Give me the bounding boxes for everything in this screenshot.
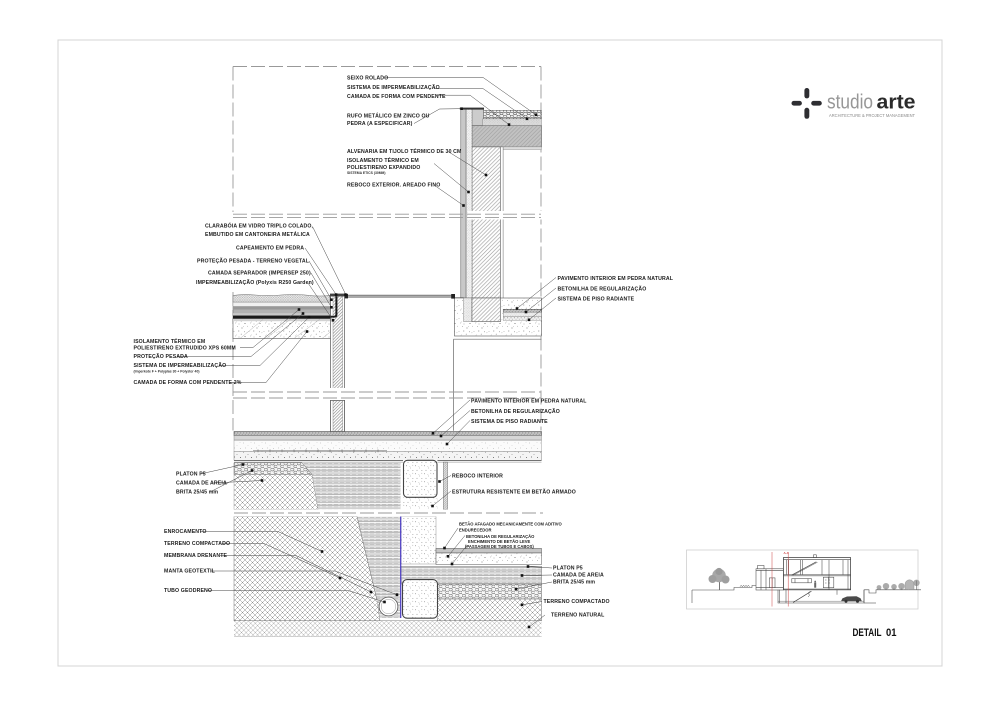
svg-text:A-A: A-A bbox=[784, 551, 790, 555]
svg-text:ISOLAMENTO TÉRMICO EM: ISOLAMENTO TÉRMICO EM bbox=[134, 337, 206, 345]
svg-text:SISTEMA DE IMPERMEABILIZAÇÃO: SISTEMA DE IMPERMEABILIZAÇÃO bbox=[347, 84, 440, 91]
svg-text:CAMADA SEPARADOR (IMPERSEP 250: CAMADA SEPARADOR (IMPERSEP 250) bbox=[208, 271, 311, 277]
svg-text:ENROCAMENTO: ENROCAMENTO bbox=[164, 529, 207, 535]
svg-text:MEMBRANA DRENANTE: MEMBRANA DRENANTE bbox=[164, 553, 228, 559]
svg-text:EMBUTIDO EM CANTONEIRA METÁLIC: EMBUTIDO EM CANTONEIRA METÁLICA bbox=[205, 231, 310, 238]
svg-text:PEDRA (A ESPECIFICAR): PEDRA (A ESPECIFICAR) bbox=[347, 121, 413, 127]
svg-text:arte: arte bbox=[877, 91, 916, 114]
svg-text:ESTRUTURA RESISTENTE EM BETÃO: ESTRUTURA RESISTENTE EM BETÃO ARMADO bbox=[452, 489, 576, 496]
svg-text:(Imperkote F + Polyplas 30 + P: (Imperkote F + Polyplas 30 + Polyster 40… bbox=[134, 370, 200, 374]
svg-text:CAMADA DE AREIA: CAMADA DE AREIA bbox=[553, 573, 604, 579]
svg-text:RUFO METÁLICO EM ZINCO OU: RUFO METÁLICO EM ZINCO OU bbox=[347, 113, 430, 120]
svg-text:ISOLAMENTO TÉRMICO EM: ISOLAMENTO TÉRMICO EM bbox=[347, 156, 419, 164]
svg-text:CAMADA DE FORMA COM PENDENTE: CAMADA DE FORMA COM PENDENTE bbox=[347, 94, 446, 100]
svg-text:(PASSAGEM DE TUBOS E CABOS): (PASSAGEM DE TUBOS E CABOS) bbox=[465, 544, 534, 549]
svg-text:PAVIMENTO INTERIOR EM PEDRA NA: PAVIMENTO INTERIOR EM PEDRA NATURAL bbox=[558, 276, 674, 282]
svg-text:01: 01 bbox=[886, 627, 897, 639]
svg-text:TUBO GEODRENO: TUBO GEODRENO bbox=[164, 588, 212, 594]
svg-text:REBOCO INTERIOR: REBOCO INTERIOR bbox=[452, 474, 503, 480]
svg-text:IMPERMEABILIZAÇÃO (Polyxis R25: IMPERMEABILIZAÇÃO (Polyxis R250 Garden) bbox=[196, 279, 314, 286]
svg-text:SISTEMA ETICS (30MM): SISTEMA ETICS (30MM) bbox=[347, 171, 386, 175]
svg-text:ALVENARIA EM TIJOLO TÉRMICO DE: ALVENARIA EM TIJOLO TÉRMICO DE 30 CM bbox=[347, 147, 462, 155]
svg-text:PROTEÇÃO PESADA - TERRENO VEGE: PROTEÇÃO PESADA - TERRENO VEGETAL bbox=[197, 258, 310, 265]
svg-text:BETÃO AFAGADO MECANICAMENTE CO: BETÃO AFAGADO MECANICAMENTE COM ADITIVO bbox=[459, 522, 563, 527]
svg-text:PROTEÇÃO PESADA: PROTEÇÃO PESADA bbox=[134, 353, 189, 360]
svg-text:CAMADA DE FORMA COM PENDENTE 2: CAMADA DE FORMA COM PENDENTE 2% bbox=[134, 380, 242, 386]
svg-text:CAPEAMENTO EM PEDRA: CAPEAMENTO EM PEDRA bbox=[236, 246, 304, 252]
svg-text:POLIESTIRENO EXTRUDIDO XPS 60M: POLIESTIRENO EXTRUDIDO XPS 60MM bbox=[134, 346, 236, 352]
svg-text:BETONILHA DE REGULARIZAÇÃO: BETONILHA DE REGULARIZAÇÃO bbox=[558, 286, 647, 293]
svg-text:SEIXO ROLADO: SEIXO ROLADO bbox=[347, 76, 388, 82]
svg-text:CAMADA DE AREIA: CAMADA DE AREIA bbox=[176, 481, 227, 487]
svg-text:PLATON P5: PLATON P5 bbox=[176, 472, 206, 478]
svg-text:BETONILHA DE REGULARIZAÇÃO: BETONILHA DE REGULARIZAÇÃO bbox=[471, 408, 560, 415]
svg-text:REBOCO EXTERIOR. AREADO FINO: REBOCO EXTERIOR. AREADO FINO bbox=[347, 183, 440, 189]
svg-text:PLATON P5: PLATON P5 bbox=[553, 566, 583, 572]
svg-text:ARCHITECTURE & PROJECT MANAGEM: ARCHITECTURE & PROJECT MANAGEMENT bbox=[829, 113, 915, 118]
svg-text:SISTEMA DE PISO RADIANTE: SISTEMA DE PISO RADIANTE bbox=[471, 419, 548, 425]
svg-text:SISTEMA DE PISO RADIANTE: SISTEMA DE PISO RADIANTE bbox=[558, 297, 635, 303]
svg-text:BRITA 25/45 mm: BRITA 25/45 mm bbox=[176, 490, 218, 496]
svg-text:ENCHIMENTO DE BETÃO LEVE: ENCHIMENTO DE BETÃO LEVE bbox=[468, 539, 531, 544]
svg-text:studio: studio bbox=[827, 91, 873, 114]
svg-text:CLARABÓIA EM VIDRO TRIPLO COLA: CLARABÓIA EM VIDRO TRIPLO COLADO, bbox=[205, 222, 314, 230]
svg-text:DETAIL: DETAIL bbox=[853, 627, 882, 639]
svg-text:TERRENO COMPACTADO: TERRENO COMPACTADO bbox=[164, 541, 230, 547]
svg-text:BRITA 25/45 mm: BRITA 25/45 mm bbox=[553, 580, 595, 586]
svg-text:SISTEMA DE IMPERMEABILIZAÇÃO: SISTEMA DE IMPERMEABILIZAÇÃO bbox=[134, 362, 227, 369]
svg-text:PAVIMENTO INTERIOR EM PEDRA NA: PAVIMENTO INTERIOR EM PEDRA NATURAL bbox=[471, 399, 587, 405]
svg-text:ENDURECEDOR: ENDURECEDOR bbox=[459, 528, 491, 533]
svg-text:MANTA GEOTEXTIL: MANTA GEOTEXTIL bbox=[164, 569, 216, 575]
svg-text:TERRENO NATURAL: TERRENO NATURAL bbox=[551, 613, 605, 619]
svg-text:TERRENO COMPACTADO: TERRENO COMPACTADO bbox=[544, 599, 610, 605]
